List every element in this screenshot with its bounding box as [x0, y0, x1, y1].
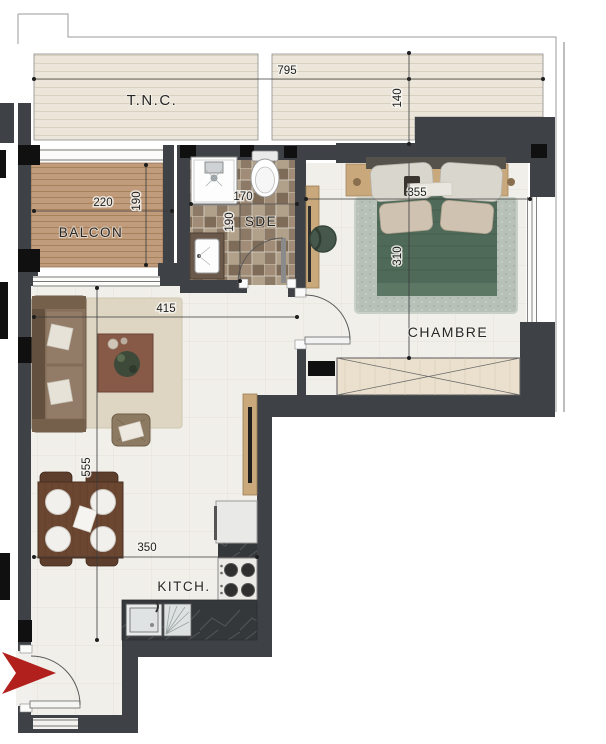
toilet	[251, 151, 279, 197]
dim-label-190-sde: 190	[224, 212, 236, 231]
drainboard	[164, 604, 191, 636]
balcony-deck	[31, 163, 163, 267]
living-balcony-window	[33, 276, 160, 287]
dim-label-795: 795	[277, 65, 296, 77]
fridge	[214, 501, 257, 543]
desk-chair	[310, 226, 336, 252]
edge-structures	[0, 103, 14, 600]
room-label-kitchen: KITCH.	[157, 579, 210, 594]
room-label-tnc: T.N.C.	[127, 92, 178, 109]
counter-top	[218, 543, 257, 558]
washbasin	[190, 233, 224, 279]
sofa	[32, 296, 86, 432]
dim-label-170: 170	[233, 191, 252, 203]
plant-icon	[114, 351, 140, 377]
dim-label-350: 350	[137, 542, 156, 554]
room-label-chambre: CHAMBRE	[408, 324, 489, 340]
kitchen-sink	[126, 602, 162, 636]
pillow	[379, 200, 433, 234]
balcony-top-glazing	[40, 148, 163, 162]
room-label-balcon: BALCON	[59, 225, 124, 240]
plate	[46, 527, 71, 552]
dim-label-415: 415	[156, 303, 175, 315]
door-leaf	[30, 701, 80, 708]
dim-label-220: 220	[93, 197, 112, 209]
tv-icon	[248, 407, 252, 483]
door-leaf	[281, 238, 286, 283]
plate	[46, 490, 71, 515]
dim-label-555: 555	[81, 457, 93, 476]
dim-label-355: 355	[407, 187, 426, 199]
sofa-pillow	[47, 379, 72, 404]
bedside-lamp-icon	[507, 178, 515, 186]
dim-label-140: 140	[392, 88, 404, 107]
room-label-sde: SDE	[245, 214, 277, 229]
stove	[218, 558, 257, 602]
dim-label-310: 310	[392, 246, 404, 265]
plate	[91, 527, 116, 552]
floor-plan-drawing: T.N.C.	[0, 0, 606, 744]
bedroom-window	[526, 197, 538, 322]
blanket-fold	[377, 283, 497, 296]
pouf	[112, 414, 150, 446]
sofa-pillow	[47, 324, 73, 350]
dim-label-190-balcon: 190	[131, 191, 143, 210]
door-leaf	[305, 337, 350, 344]
pillow	[440, 200, 494, 234]
floor-plan: T.N.C.	[0, 0, 606, 744]
coffee-table	[98, 334, 153, 392]
wardrobe	[337, 358, 520, 395]
bottom-wall-window	[33, 718, 78, 729]
dining-set	[38, 472, 123, 566]
pillow	[439, 162, 503, 202]
shower	[191, 157, 237, 205]
tv-console	[243, 394, 257, 495]
bedside-lamp-icon	[353, 178, 361, 186]
